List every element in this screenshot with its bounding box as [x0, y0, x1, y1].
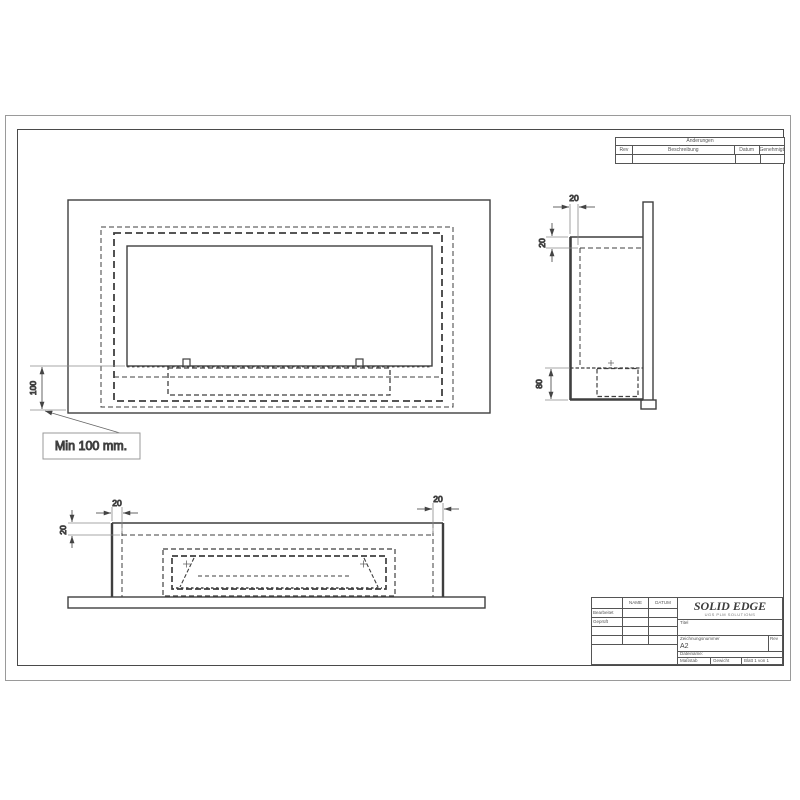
title-block-notes-box	[592, 645, 677, 664]
side-dim-burner: 80	[534, 379, 544, 389]
bottom-view: 20 20 20	[58, 494, 485, 608]
drawing-canvas: 100 Min 100 mm. 20	[0, 0, 800, 800]
revision-table-title: Änderungen	[616, 138, 784, 146]
sheet-field: Blatt 1 von 1	[742, 658, 782, 664]
drawing-sheet: 100 Min 100 mm. 20	[0, 0, 800, 800]
solid-edge-logo: SOLID EDGE	[694, 600, 766, 612]
bottom-dim-flange-left: 20	[58, 525, 68, 535]
rev-col-date: Datum	[735, 146, 760, 154]
bottom-dim-gap-right: 20	[433, 494, 443, 504]
rev-col-approved: Genehmigt	[760, 146, 784, 154]
sheet-size: A2	[680, 643, 766, 650]
approval-row-edited: Bearbeitet	[592, 609, 623, 617]
rev-field: Rev	[768, 636, 782, 651]
center-mark	[608, 360, 614, 366]
scale-field: Maßstab	[678, 658, 711, 664]
min-distance-note: Min 100 mm.	[55, 439, 127, 453]
mount-clip-right	[356, 359, 363, 366]
title-field: Titel	[678, 619, 782, 634]
solid-edge-logo-subtitle: UGS PLM SOLUTIONS	[705, 613, 756, 617]
revision-empty-row	[616, 155, 784, 163]
front-view: 100 Min 100 mm.	[28, 200, 490, 459]
approval-col-date: DATUM	[649, 598, 677, 608]
bottom-dim-gap-left: 20	[112, 498, 122, 508]
side-view: 20 20 80	[534, 193, 656, 409]
front-dim-height: 100	[28, 381, 38, 395]
side-dim-depth: 20	[569, 193, 579, 203]
burner-center-marks	[183, 561, 367, 568]
revision-table: Änderungen Rev Beschreibung Datum Genehm…	[615, 137, 785, 164]
filename-field: Dateiname:	[678, 651, 782, 658]
title-block: NAME DATUM Bearbeitet Geprüft SOLID EDGE…	[591, 597, 783, 665]
approval-col-name: NAME	[623, 598, 649, 608]
mount-clip-left	[183, 359, 190, 366]
approval-table: NAME DATUM Bearbeitet Geprüft	[592, 598, 678, 664]
weight-field: Gewicht	[711, 658, 742, 664]
approval-row-checked: Geprüft	[592, 618, 623, 626]
side-dim-flange: 20	[537, 238, 547, 248]
rev-col-desc: Beschreibung	[633, 146, 735, 154]
doc-number-label: Zeichnungsnummer	[680, 637, 766, 642]
rev-col-rev: Rev	[616, 146, 633, 154]
